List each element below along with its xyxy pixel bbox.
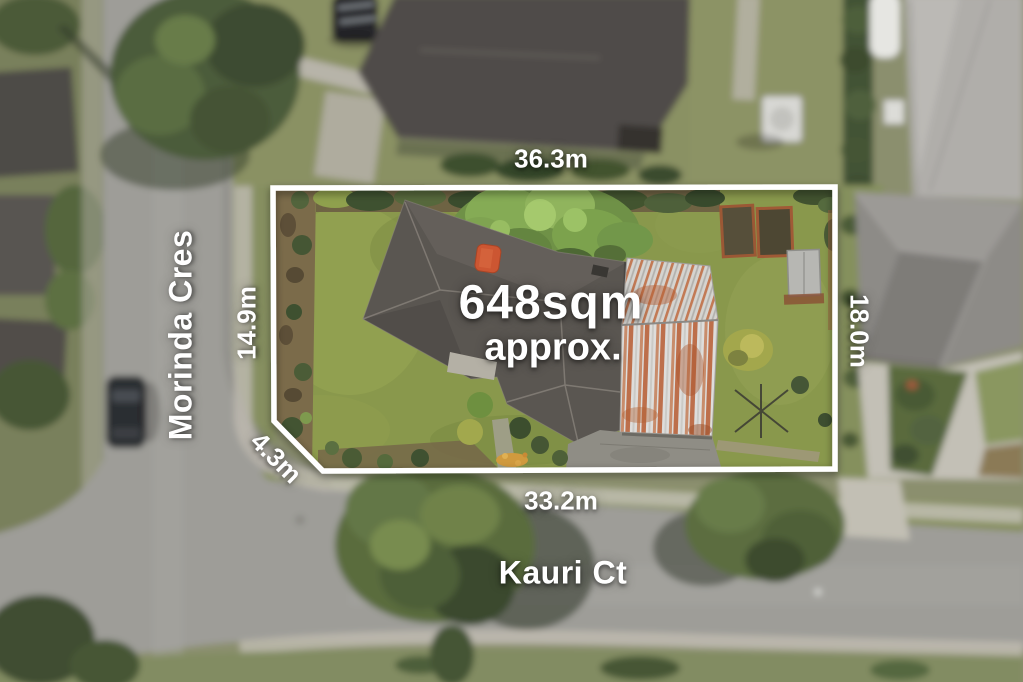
parked-car: [106, 376, 160, 448]
garden-shed: [784, 249, 824, 304]
street-name-morinda-cres: Morinda Cres: [163, 230, 200, 440]
chimney: [474, 243, 502, 273]
neighbor-house-top-right: [690, 0, 1023, 200]
land-area-value: 648sqm: [459, 276, 644, 331]
street-name-kauri-ct: Kauri Ct: [499, 555, 627, 592]
dimension-left: 14.9m: [232, 286, 263, 360]
yellow-bush: [723, 329, 773, 371]
dimension-bottom: 33.2m: [524, 486, 598, 517]
dimension-right: 18.0m: [844, 294, 875, 368]
dimension-top: 36.3m: [514, 144, 588, 175]
property-aerial-view: 36.3m Morinda Cres 14.9m 4.3m 33.2m Kaur…: [0, 0, 1023, 682]
driveway: [566, 430, 722, 470]
land-area-qualifier: approx.: [484, 327, 621, 370]
